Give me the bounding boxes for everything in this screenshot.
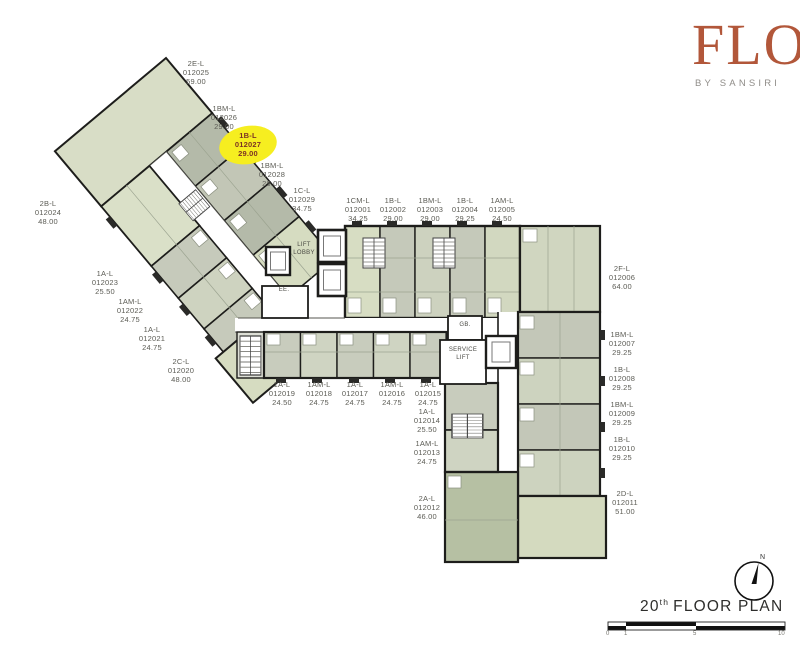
unit-type: 1BM-L xyxy=(259,161,285,170)
unit-type: 1A-L xyxy=(139,325,165,334)
unit-area: 29.00 xyxy=(259,179,285,188)
unit-label-012015[interactable]: 1A-L01201524.75 xyxy=(415,380,441,407)
unit-number: 012026 xyxy=(211,113,237,122)
lift-lobby-label: LIFTLOBBY xyxy=(293,242,315,257)
unit-label-012002[interactable]: 1B-L01200229.00 xyxy=(380,196,406,223)
unit-label-012023[interactable]: 1A-L01202325.50 xyxy=(92,269,118,296)
unit-type: 2A-L xyxy=(414,494,440,503)
unit-number: 012022 xyxy=(117,306,143,315)
unit-area: 24.75 xyxy=(306,398,332,407)
unit-type: 1BM-L xyxy=(609,400,635,409)
unit-area: 24.75 xyxy=(379,398,405,407)
unit-type: 1BM-L xyxy=(609,330,635,339)
unit-label-012018[interactable]: 1AM-L01201824.75 xyxy=(306,380,332,407)
unit-number: 012021 xyxy=(139,334,165,343)
unit-number: 012004 xyxy=(452,205,478,214)
unit-shape-012011[interactable] xyxy=(518,496,606,558)
unit-label-012025[interactable]: 2E-L01202559.00 xyxy=(183,59,209,86)
unit-label-012007[interactable]: 1BM-L01200729.25 xyxy=(609,330,635,357)
unit-area: 29.00 xyxy=(417,214,443,223)
unit-label-012013[interactable]: 1AM-L01201324.75 xyxy=(414,439,440,466)
unit-area: 24.75 xyxy=(415,398,441,407)
unit-label-012001[interactable]: 1CM-L01200134.25 xyxy=(345,196,371,223)
middle-wing-south xyxy=(237,332,447,383)
unit-number: 012023 xyxy=(92,278,118,287)
unit-area: 34.25 xyxy=(345,214,371,223)
scale-bar xyxy=(608,622,785,630)
unit-type: 1B-L xyxy=(609,435,635,444)
ee-label: EE. xyxy=(279,287,290,295)
scale-tick: 0 xyxy=(606,631,609,637)
unit-type: 2B-L xyxy=(35,199,61,208)
unit-type: 1AM-L xyxy=(306,380,332,389)
brand-tagline: BY SANSIRI xyxy=(695,78,800,89)
unit-number: 012018 xyxy=(306,389,332,398)
unit-label-012029[interactable]: 1C-L01202934.75 xyxy=(289,186,315,213)
unit-label-012028[interactable]: 1BM-L01202829.00 xyxy=(259,161,285,188)
unit-area: 34.75 xyxy=(289,204,315,213)
unit-number: 012016 xyxy=(379,389,405,398)
unit-type: 1A-L xyxy=(92,269,118,278)
unit-number: 012009 xyxy=(609,409,635,418)
unit-number: 012028 xyxy=(259,170,285,179)
unit-label-012004[interactable]: 1B-L01200429.25 xyxy=(452,196,478,223)
unit-area: 29.25 xyxy=(609,418,635,427)
unit-number: 012001 xyxy=(345,205,371,214)
unit-type: 1AM-L xyxy=(117,297,143,306)
unit-label-012003[interactable]: 1BM-L01200329.00 xyxy=(417,196,443,223)
unit-type: 1AM-L xyxy=(379,380,405,389)
unit-number: 012007 xyxy=(609,339,635,348)
unit-area: 64.00 xyxy=(609,282,635,291)
unit-label-012019[interactable]: 1A-L01201924.50 xyxy=(269,380,295,407)
unit-type: 1AM-L xyxy=(414,439,440,448)
unit-number: 012029 xyxy=(289,195,315,204)
unit-type: 1BM-L xyxy=(417,196,443,205)
unit-area: 25.50 xyxy=(414,425,440,434)
unit-number: 012011 xyxy=(612,498,638,507)
unit-area: 25.50 xyxy=(92,287,118,296)
unit-number: 012017 xyxy=(342,389,368,398)
unit-area: 29.25 xyxy=(609,453,635,462)
scale-tick: 1 xyxy=(624,631,627,637)
unit-type: 2C-L xyxy=(168,357,194,366)
unit-type: 2D-L xyxy=(612,489,638,498)
north-label: N xyxy=(760,554,765,561)
unit-area: 24.50 xyxy=(269,398,295,407)
scale-tick: 10 xyxy=(778,631,785,637)
unit-area: 24.75 xyxy=(117,315,143,324)
unit-label-012027-selected[interactable]: 1B-L01202729.00 xyxy=(235,131,261,158)
brand-logo: FLO BY SANSIRI xyxy=(692,14,800,89)
unit-number: 012025 xyxy=(183,68,209,77)
floor-plan-page: 1CM-L01200134.25 1B-L01200229.00 1BM-L01… xyxy=(0,0,800,653)
unit-number: 012003 xyxy=(417,205,443,214)
unit-area: 29.25 xyxy=(609,383,635,392)
unit-type: 1B-L xyxy=(235,131,261,140)
unit-number: 012006 xyxy=(609,273,635,282)
unit-label-012020[interactable]: 2C-L01202048.00 xyxy=(168,357,194,384)
unit-type: 1AM-L xyxy=(489,196,515,205)
unit-type: 1C-L xyxy=(289,186,315,195)
unit-number: 012002 xyxy=(380,205,406,214)
page-title: 20thFLOOR PLAN xyxy=(640,597,783,616)
unit-type: 1A-L xyxy=(415,380,441,389)
unit-area: 24.75 xyxy=(342,398,368,407)
unit-area: 24.75 xyxy=(414,457,440,466)
unit-area: 48.00 xyxy=(168,375,194,384)
unit-label-012016[interactable]: 1AM-L01201624.75 xyxy=(379,380,405,407)
unit-label-012024[interactable]: 2B-L01202448.00 xyxy=(35,199,61,226)
floor-plan-drawing xyxy=(0,0,800,653)
unit-label-012005[interactable]: 1AM-L01200524.50 xyxy=(489,196,515,223)
unit-type: 2E-L xyxy=(183,59,209,68)
unit-label-012014[interactable]: 1A-L01201425.50 xyxy=(414,407,440,434)
unit-label-012008[interactable]: 1B-L01200829.25 xyxy=(609,365,635,392)
unit-area: 24.75 xyxy=(139,343,165,352)
brand-name: FLO xyxy=(692,14,800,76)
unit-label-012006[interactable]: 2F-L01200664.00 xyxy=(609,264,635,291)
unit-area: 24.50 xyxy=(489,214,515,223)
unit-number: 012008 xyxy=(609,374,635,383)
unit-area: 29.25 xyxy=(452,214,478,223)
unit-type: 2F-L xyxy=(609,264,635,273)
unit-number: 012027 xyxy=(235,140,261,149)
unit-type: 1A-L xyxy=(342,380,368,389)
compass-icon xyxy=(735,562,773,600)
unit-label-012010[interactable]: 1B-L01201029.25 xyxy=(609,435,635,462)
unit-type: 1CM-L xyxy=(345,196,371,205)
unit-number: 012019 xyxy=(269,389,295,398)
unit-label-012021[interactable]: 1A-L01202124.75 xyxy=(139,325,165,352)
unit-number: 012010 xyxy=(609,444,635,453)
unit-area: 29.00 xyxy=(211,122,237,131)
unit-area: 29.25 xyxy=(609,348,635,357)
unit-number: 012005 xyxy=(489,205,515,214)
unit-label-012012[interactable]: 2A-L01201246.00 xyxy=(414,494,440,521)
gb-label: GB. xyxy=(459,322,470,330)
scale-tick: 5 xyxy=(693,631,696,637)
unit-type: 1B-L xyxy=(609,365,635,374)
unit-area: 46.00 xyxy=(414,512,440,521)
unit-number: 012013 xyxy=(414,448,440,457)
service-lift-label: SERVICELIFT xyxy=(449,347,477,362)
unit-area: 29.00 xyxy=(235,149,261,158)
unit-number: 012014 xyxy=(414,416,440,425)
unit-number: 012020 xyxy=(168,366,194,375)
unit-label-012011[interactable]: 2D-L01201151.00 xyxy=(612,489,638,516)
unit-area: 59.00 xyxy=(183,77,209,86)
unit-label-012017[interactable]: 1A-L01201724.75 xyxy=(342,380,368,407)
unit-number: 012024 xyxy=(35,208,61,217)
middle-wing-north xyxy=(345,221,520,318)
unit-label-012009[interactable]: 1BM-L01200929.25 xyxy=(609,400,635,427)
unit-area: 51.00 xyxy=(612,507,638,516)
unit-label-012026[interactable]: 1BM-L01202629.00 xyxy=(211,104,237,131)
unit-number: 012012 xyxy=(414,503,440,512)
unit-area: 48.00 xyxy=(35,217,61,226)
unit-type: 1B-L xyxy=(380,196,406,205)
unit-area: 29.00 xyxy=(380,214,406,223)
unit-type: 1B-L xyxy=(452,196,478,205)
unit-label-012022[interactable]: 1AM-L01202224.75 xyxy=(117,297,143,324)
unit-type: 1BM-L xyxy=(211,104,237,113)
unit-type: 1A-L xyxy=(269,380,295,389)
unit-number: 012015 xyxy=(415,389,441,398)
unit-type: 1A-L xyxy=(414,407,440,416)
